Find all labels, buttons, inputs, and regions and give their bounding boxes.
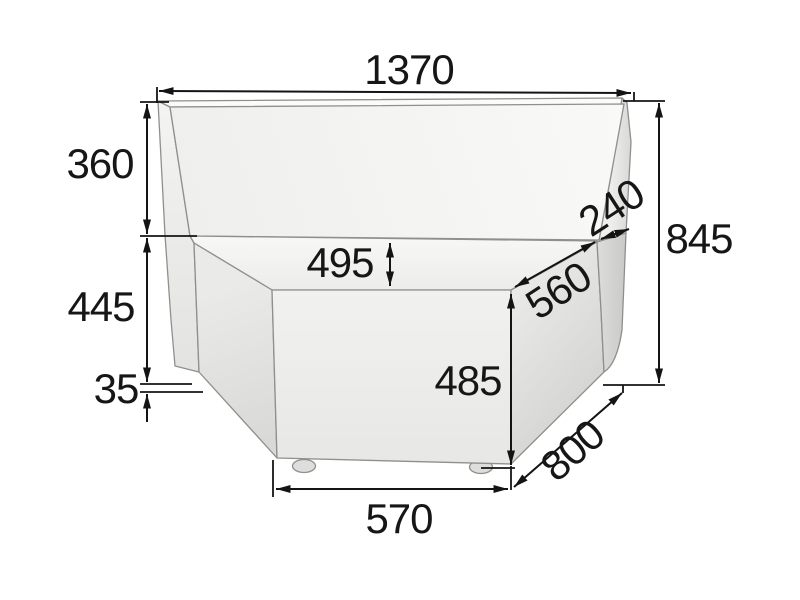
sofa-leg-left bbox=[293, 460, 316, 473]
dim-label-left-base-height: 445 bbox=[67, 283, 134, 330]
dim-label-backrest-height: 360 bbox=[66, 140, 133, 187]
dim-label-overall-width: 1370 bbox=[364, 46, 453, 93]
dim-label-overall-height: 845 bbox=[665, 215, 732, 262]
dim-overall-width: 1370 bbox=[157, 46, 634, 103]
dim-label-bottom-clearance: 35 bbox=[94, 365, 139, 412]
dim-label-front-width: 570 bbox=[365, 495, 432, 542]
furniture-dimension-drawing: 1370 360 445 35 495 240 bbox=[0, 0, 800, 600]
dim-bottom-clearance: 35 bbox=[94, 365, 203, 422]
sofa-backrest-front bbox=[170, 104, 624, 240]
dim-label-front-height: 485 bbox=[434, 357, 501, 404]
dim-label-seat-depth-drop: 495 bbox=[306, 239, 373, 286]
drawing-canvas: 1370 360 445 35 495 240 bbox=[0, 0, 800, 600]
